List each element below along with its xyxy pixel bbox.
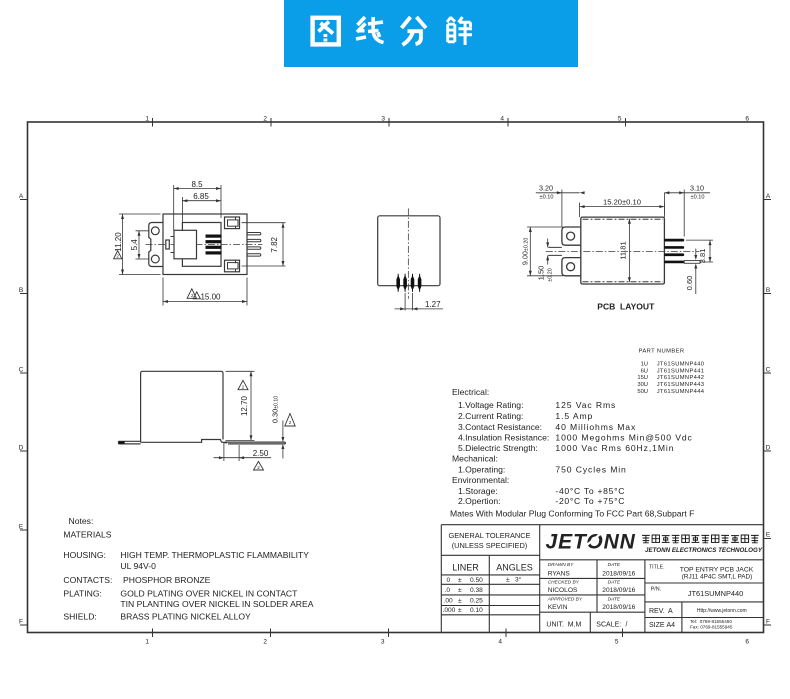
svg-text:0.30±0.10: 0.30±0.10 [271,396,280,423]
svg-text:CHECKED BY: CHECKED BY [548,580,580,586]
svg-text:C: C [766,367,771,374]
svg-text:0.38: 0.38 [470,587,483,594]
svg-text:2: 2 [242,385,245,390]
svg-text:CONTACTS:: CONTACTS: [63,575,112,585]
svg-text:3.20: 3.20 [539,184,553,193]
svg-text:5: 5 [615,639,619,646]
svg-text:7.82: 7.82 [270,236,279,252]
svg-text:2: 2 [263,639,267,646]
svg-text:1.50: 1.50 [537,266,546,281]
svg-text:6.85: 6.85 [193,192,209,201]
svg-text:±: ± [458,607,462,614]
svg-text:125 Vac Rms: 125 Vac Rms [555,400,616,410]
svg-text:D: D [19,445,24,452]
svg-text:UNIT.: UNIT. [546,622,564,629]
svg-text:2018/09/16: 2018/09/16 [602,604,635,611]
svg-text:PHOSPHOR BRONZE: PHOSPHOR BRONZE [123,575,211,585]
svg-text:Mechanical:: Mechanical: [452,454,498,464]
svg-text:KEVIN: KEVIN [548,604,568,611]
svg-text:±0.10: ±0.10 [691,194,705,200]
svg-text:D: D [766,445,771,452]
svg-text:9.00±0.20: 9.00±0.20 [521,238,530,265]
svg-text:PLATING:: PLATING: [63,589,102,599]
svg-text:15.00: 15.00 [200,292,221,301]
svg-text:11.20: 11.20 [114,232,123,252]
svg-text:MATERIALS: MATERIALS [63,530,111,540]
svg-text:4.Insulation Resistance:: 4.Insulation Resistance: [458,433,549,443]
svg-text:P/N.: P/N. [651,586,661,592]
svg-text:A: A [668,608,673,615]
svg-text:/: / [626,622,628,629]
svg-text:Electrical:: Electrical: [452,387,489,397]
svg-text:RYANS: RYANS [548,571,571,578]
svg-text:(UNLESS SPECIFIED): (UNLESS SPECIFIED) [452,541,528,550]
svg-text:3.Contact Resistance:: 3.Contact Resistance: [458,422,542,432]
svg-text:±0.20: ±0.20 [548,268,554,281]
svg-text:±0.10: ±0.10 [540,194,554,200]
svg-text:40 Milliohms Max: 40 Milliohms Max [555,422,636,432]
svg-text:HOUSING:: HOUSING: [63,550,106,560]
svg-text:1.Storage:: 1.Storage: [458,486,498,496]
svg-text:BRASS PLATING NICKEL ALLOY: BRASS PLATING NICKEL ALLOY [120,612,251,622]
svg-text:2: 2 [263,116,267,123]
svg-text:E: E [19,524,24,531]
svg-text:-20°C To +75°C: -20°C To +75°C [555,496,625,506]
svg-text:5.4: 5.4 [130,239,139,251]
svg-text:1000 Megohms Min@500 Vdc: 1000 Megohms Min@500 Vdc [555,433,692,443]
svg-text:0.50: 0.50 [470,577,483,584]
svg-text:1.27: 1.27 [425,300,441,309]
svg-text:50U: 50U [637,389,648,395]
svg-text:JETONN ELECTRONICS TECHNOLOGY: JETONN ELECTRONICS TECHNOLOGY [645,547,763,554]
svg-text:DRAWN BY: DRAWN BY [548,562,575,568]
svg-text:B: B [766,287,770,294]
svg-text:3: 3 [381,639,385,646]
svg-text:-40°C To +85°C: -40°C To +85°C [555,486,625,496]
svg-text:.00: .00 [444,597,453,604]
svg-text:Tel: 0769-81555450: Tel: 0769-81555450 [690,619,732,624]
svg-text:SCALE:: SCALE: [596,622,621,629]
svg-text:±: ± [458,577,462,584]
svg-text:±: ± [506,576,510,583]
svg-text:F: F [19,619,23,626]
svg-text:(RJ11 4P4C SMT,L PAD): (RJ11 4P4C SMT,L PAD) [682,574,753,581]
svg-text:TITLE.: TITLE. [649,565,665,571]
svg-text:12.70: 12.70 [240,395,249,416]
svg-text:±: ± [458,597,462,604]
svg-text:GOLD PLATING OVER NICKEL IN CO: GOLD PLATING OVER NICKEL IN CONTACT [120,589,298,599]
svg-text:JT61SUMNP440: JT61SUMNP440 [657,362,705,368]
svg-text:.000: .000 [443,607,456,614]
svg-text:8.5: 8.5 [191,180,203,189]
svg-text:UL 94V-0: UL 94V-0 [120,561,156,571]
svg-text:5.Dielectric Strength:: 5.Dielectric Strength: [458,443,538,453]
svg-text:ANGLES: ANGLES [496,563,533,573]
svg-text:C: C [19,367,24,374]
svg-text:2: 2 [116,254,119,259]
svg-text:1.5 Amp: 1.5 Amp [555,411,593,421]
svg-text:2018/09/16: 2018/09/16 [602,587,635,594]
svg-text:HIGH TEMP. THERMOPLASTIC FLAMM: HIGH TEMP. THERMOPLASTIC FLAMMABILITY [120,550,309,560]
svg-text:TOP ENTRY PCB JACK: TOP ENTRY PCB JACK [680,567,754,574]
svg-text:M.M: M.M [568,622,582,629]
svg-text:2: 2 [289,420,292,425]
svg-text:3.10: 3.10 [690,184,704,193]
svg-text:JT61SUMNP442: JT61SUMNP442 [657,375,705,381]
svg-text:GENERAL TOLERANCE: GENERAL TOLERANCE [448,531,530,540]
svg-text:2.50: 2.50 [253,449,269,458]
svg-text:JT61SUMNP444: JT61SUMNP444 [657,389,705,395]
svg-text:TIN PLANTING OVER NICKEL IN SO: TIN PLANTING OVER NICKEL IN SOLDER AREA [120,599,313,609]
svg-text:3: 3 [381,116,385,123]
svg-text:6: 6 [745,116,749,123]
svg-text:NICOLOS: NICOLOS [548,587,578,594]
svg-text:2: 2 [257,465,260,470]
svg-text:6: 6 [745,639,749,646]
svg-text:F: F [766,619,770,626]
svg-text:JT61SUMNP443: JT61SUMNP443 [657,382,705,388]
svg-text:Fax: 0769-81555945: Fax: 0769-81555945 [690,625,733,630]
svg-text:DATE: DATE [608,562,621,568]
svg-text:REV.: REV. [649,608,665,615]
svg-text:1.Operating:: 1.Operating: [458,465,505,475]
svg-text:.0: .0 [445,587,451,594]
svg-text:Notes:: Notes: [69,516,94,526]
svg-text:1000 Vac Rms 60Hz,1Min: 1000 Vac Rms 60Hz,1Min [555,443,674,453]
svg-text:0.10: 0.10 [470,607,483,614]
svg-text:15.20±0.10: 15.20±0.10 [603,197,641,206]
svg-text:Environmental:: Environmental: [452,475,509,485]
svg-text:3°: 3° [515,575,522,583]
svg-text:Mates With Modular Plug Confor: Mates With Modular Plug Conforming To FC… [450,509,694,519]
svg-text:SHIELD:: SHIELD: [63,612,96,622]
svg-text:SIZE: SIZE [649,622,665,629]
svg-text:1: 1 [145,116,149,123]
svg-text:A: A [19,193,24,200]
svg-text:4: 4 [498,639,502,646]
svg-text:1.Voltage Rating:: 1.Voltage Rating: [458,400,523,410]
svg-text:JT61SUMNP441: JT61SUMNP441 [657,368,705,374]
svg-text:0.25: 0.25 [470,597,483,604]
svg-text:±: ± [458,587,462,594]
svg-text:DATE: DATE [608,580,621,586]
svg-text:5: 5 [618,116,622,123]
svg-text:PART NUMBER: PART NUMBER [639,348,685,354]
svg-text:JT61SUMNP440: JT61SUMNP440 [688,589,743,598]
svg-text:11.81: 11.81 [619,241,628,259]
svg-text:B: B [19,287,23,294]
svg-text:A4: A4 [667,622,676,629]
svg-text:3.81: 3.81 [698,249,707,264]
svg-text:1U: 1U [641,362,648,368]
svg-text:Http://www.jetonn.com: Http://www.jetonn.com [697,608,747,614]
svg-text:15U: 15U [637,375,648,381]
svg-text:0: 0 [447,577,451,584]
svg-text:2.Current Rating:: 2.Current Rating: [458,411,523,421]
svg-text:2.Opertion:: 2.Opertion: [458,496,501,506]
svg-text:PCB LAYOUT: PCB LAYOUT [597,303,654,312]
svg-text:1: 1 [145,639,149,646]
svg-text:2018/09/16: 2018/09/16 [602,571,635,578]
svg-text:LINER: LINER [452,563,479,573]
svg-text:4: 4 [500,116,504,123]
svg-text:E: E [766,532,771,539]
svg-text:DATE: DATE [608,597,621,603]
svg-text:750 Cycles Min: 750 Cycles Min [555,465,626,475]
svg-text:APPROVED BY: APPROVED BY [547,597,583,603]
svg-text:6U: 6U [641,368,648,374]
svg-text:A: A [766,193,771,200]
svg-text:0.60: 0.60 [685,276,694,291]
svg-text:30U: 30U [637,382,648,388]
svg-text:2: 2 [191,293,194,298]
